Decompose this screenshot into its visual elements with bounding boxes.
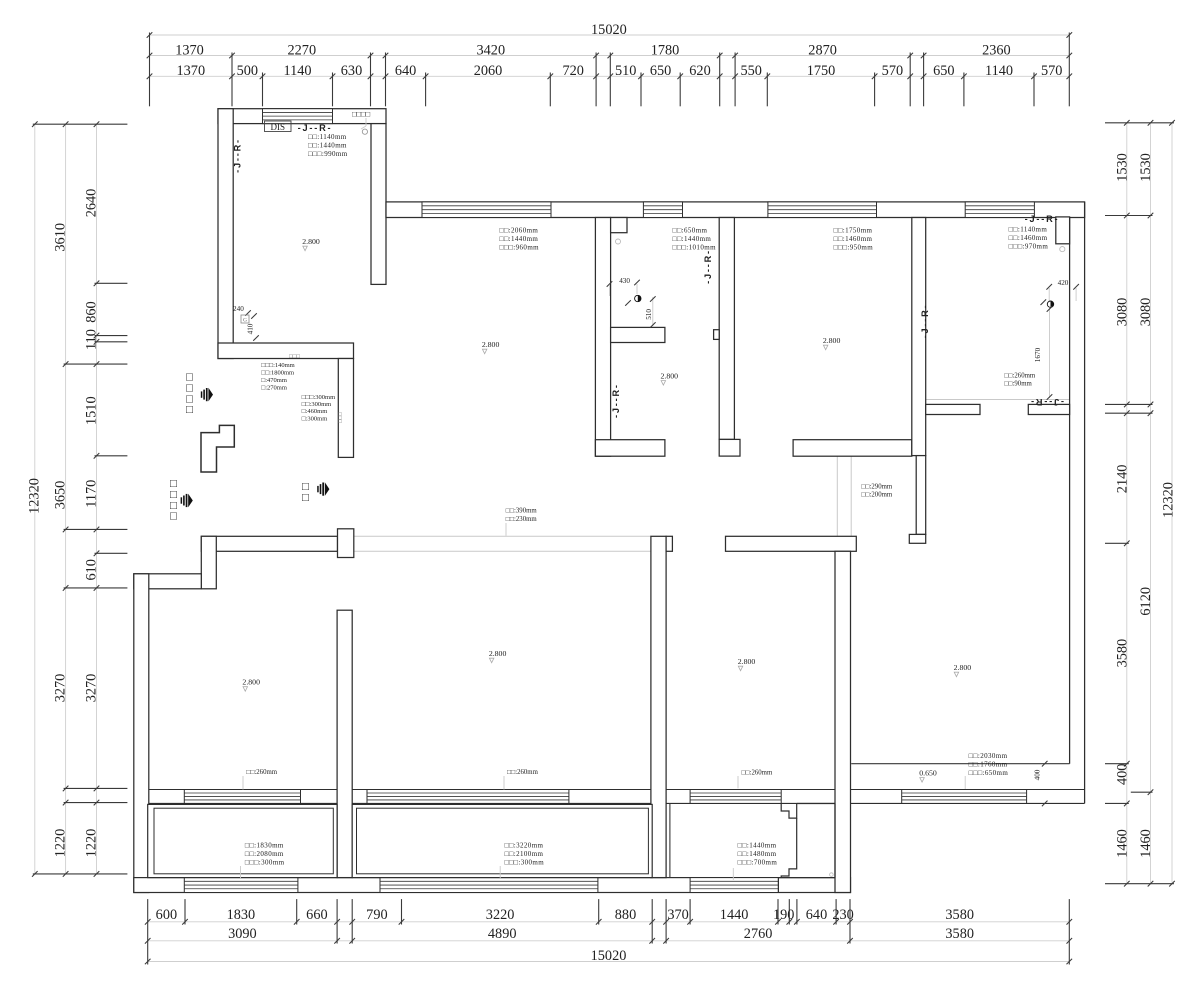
- svg-text:510: 510: [615, 63, 636, 79]
- svg-text:□□:1760mm: □□:1760mm: [969, 761, 1008, 769]
- svg-text:□□:200mm: □□:200mm: [861, 492, 893, 499]
- svg-text:□□:260mm: □□:260mm: [1004, 373, 1036, 380]
- svg-text:420: 420: [1058, 279, 1069, 287]
- svg-text:□:460mm: □:460mm: [302, 408, 328, 415]
- svg-text:□□□:140mm: □□□:140mm: [261, 362, 294, 369]
- svg-text:□□:1140mm: □□:1140mm: [1009, 226, 1048, 234]
- svg-text:□□:1460mm: □□:1460mm: [1009, 234, 1048, 242]
- svg-text:□□□:650mm: □□□:650mm: [969, 769, 1009, 777]
- svg-text:1830: 1830: [227, 907, 256, 923]
- svg-text:190: 190: [773, 907, 794, 923]
- svg-text:370: 370: [667, 907, 688, 923]
- svg-text:□:300mm: □:300mm: [302, 415, 328, 422]
- svg-text:650: 650: [933, 63, 954, 79]
- svg-text:3420: 3420: [477, 43, 506, 59]
- svg-text:400: 400: [1034, 769, 1042, 780]
- svg-text:790: 790: [366, 907, 387, 923]
- svg-text:2.800: 2.800: [482, 340, 500, 349]
- svg-text:430: 430: [619, 277, 630, 285]
- svg-text:1780: 1780: [651, 43, 680, 59]
- svg-text:1530: 1530: [1114, 153, 1130, 182]
- svg-text:2760: 2760: [744, 926, 773, 942]
- svg-text:3610: 3610: [53, 223, 69, 252]
- svg-text:410: 410: [247, 323, 255, 334]
- svg-text:2.800: 2.800: [489, 649, 507, 658]
- svg-text:12320: 12320: [27, 478, 43, 514]
- svg-text:3580: 3580: [945, 907, 974, 923]
- svg-text:□□:260mm: □□:260mm: [741, 770, 773, 777]
- svg-text:□: □: [186, 404, 193, 416]
- svg-text:□□□: □□□: [289, 354, 300, 360]
- svg-text:□: □: [302, 492, 309, 504]
- svg-text:□□:1140mm: □□:1140mm: [308, 133, 347, 141]
- svg-text:1220: 1220: [53, 829, 69, 858]
- svg-text:660: 660: [306, 907, 327, 923]
- svg-text:400: 400: [1114, 764, 1130, 785]
- svg-text:□□□:700mm: □□□:700mm: [738, 859, 778, 867]
- svg-text:3220: 3220: [486, 907, 515, 923]
- svg-text:620: 620: [689, 63, 710, 79]
- svg-text:-J--R-: -J--R-: [611, 383, 621, 418]
- svg-text:□□□:300mm: □□□:300mm: [302, 394, 335, 401]
- svg-text:□□□:300mm: □□□:300mm: [245, 859, 285, 867]
- svg-text:1530: 1530: [1138, 153, 1154, 182]
- svg-text:1220: 1220: [84, 829, 100, 858]
- svg-text:500: 500: [237, 63, 258, 79]
- svg-text:□:470mm: □:470mm: [261, 377, 287, 384]
- svg-text:□:270mm: □:270mm: [261, 385, 287, 392]
- svg-text:□□□: □□□: [338, 412, 344, 423]
- svg-text:□□:1440mm: □□:1440mm: [308, 142, 347, 150]
- svg-text:2270: 2270: [288, 43, 317, 59]
- svg-text:110: 110: [84, 329, 100, 350]
- svg-text:860: 860: [84, 301, 100, 322]
- svg-text:2.800: 2.800: [242, 678, 260, 687]
- svg-text:3080: 3080: [1138, 298, 1154, 327]
- svg-text:3270: 3270: [84, 674, 100, 703]
- svg-text:1510: 1510: [84, 396, 100, 425]
- svg-text:-J--R-: -J--R-: [703, 249, 713, 284]
- svg-text:2640: 2640: [84, 189, 100, 218]
- svg-text:650: 650: [650, 63, 671, 79]
- svg-text:550: 550: [740, 63, 761, 79]
- svg-text:4890: 4890: [488, 926, 517, 942]
- svg-text:1670: 1670: [1034, 347, 1042, 362]
- svg-text:□□:1440mm: □□:1440mm: [738, 842, 777, 850]
- svg-text:610: 610: [84, 559, 100, 580]
- svg-text:570: 570: [1041, 63, 1062, 79]
- svg-text:0.650: 0.650: [919, 768, 937, 777]
- svg-text:3580: 3580: [1114, 639, 1130, 668]
- svg-text:□□□:960mm: □□□:960mm: [499, 244, 539, 252]
- svg-text:2060: 2060: [474, 63, 503, 79]
- svg-text:□□:390mm: □□:390mm: [506, 508, 538, 515]
- svg-text:□□:3220mm: □□:3220mm: [505, 842, 544, 850]
- svg-text:2.800: 2.800: [661, 371, 679, 380]
- svg-text:□□:1830mm: □□:1830mm: [245, 842, 284, 850]
- svg-text:-J--R-: -J--R-: [1025, 214, 1060, 224]
- svg-text:□□:2060mm: □□:2060mm: [499, 227, 538, 235]
- svg-text:12320: 12320: [1161, 482, 1177, 518]
- svg-text:□: □: [170, 511, 177, 523]
- svg-text:1170: 1170: [84, 480, 100, 508]
- svg-text:□□□:1010mm: □□□:1010mm: [672, 244, 716, 252]
- svg-text:□□:2030mm: □□:2030mm: [969, 752, 1008, 760]
- svg-text:510: 510: [645, 309, 653, 320]
- svg-text:□□□:300mm: □□□:300mm: [505, 859, 545, 867]
- svg-text:□□:300mm: □□:300mm: [302, 401, 332, 408]
- svg-text:3580: 3580: [945, 926, 974, 942]
- svg-text:3090: 3090: [228, 926, 257, 942]
- svg-text:□□:230mm: □□:230mm: [506, 516, 538, 523]
- svg-text:1440: 1440: [720, 907, 749, 923]
- svg-text:□□:290mm: □□:290mm: [861, 484, 893, 491]
- svg-text:-J--R-: -J--R-: [920, 304, 930, 339]
- svg-text:630: 630: [341, 63, 362, 79]
- svg-text:15020: 15020: [591, 22, 627, 38]
- svg-text:□□:1480mm: □□:1480mm: [738, 850, 777, 858]
- svg-text:□□□□: □□□□: [352, 110, 371, 119]
- svg-text:720: 720: [562, 63, 583, 79]
- svg-text:640: 640: [395, 63, 416, 79]
- svg-text:2140: 2140: [1114, 465, 1130, 494]
- svg-text:2.800: 2.800: [738, 657, 756, 666]
- svg-text:□□:260mm: □□:260mm: [507, 769, 539, 776]
- svg-text:230: 230: [832, 907, 853, 923]
- svg-text:-J--R-: -J--R-: [1029, 397, 1064, 407]
- svg-text:1460: 1460: [1138, 829, 1154, 858]
- svg-text:□□□:950mm: □□□:950mm: [834, 244, 874, 252]
- svg-text:□□□:990mm: □□□:990mm: [308, 150, 348, 158]
- svg-text:6120: 6120: [1138, 587, 1154, 616]
- svg-text:1140: 1140: [283, 63, 311, 79]
- svg-text:□□:1800mm: □□:1800mm: [261, 370, 294, 377]
- svg-text:□□:2080mm: □□:2080mm: [245, 850, 284, 858]
- svg-text:2360: 2360: [982, 43, 1011, 59]
- svg-text:880: 880: [615, 907, 636, 923]
- svg-text:2.800: 2.800: [954, 663, 972, 672]
- svg-text:15020: 15020: [591, 948, 627, 964]
- svg-text:1140: 1140: [985, 63, 1013, 79]
- svg-text:-J--R-: -J--R-: [298, 123, 333, 133]
- svg-text:640: 640: [806, 907, 827, 923]
- svg-text:DIS: DIS: [271, 122, 286, 132]
- svg-text:3270: 3270: [53, 674, 69, 703]
- svg-text:570: 570: [882, 63, 903, 79]
- svg-text:□□:2100mm: □□:2100mm: [505, 850, 544, 858]
- svg-text:□□:90mm: □□:90mm: [1004, 381, 1032, 388]
- svg-text:G: G: [243, 318, 247, 324]
- svg-text:3650: 3650: [53, 481, 69, 510]
- svg-text:□□:1440mm: □□:1440mm: [499, 235, 538, 243]
- svg-text:□□:1460mm: □□:1460mm: [834, 235, 873, 243]
- svg-text:-J--R-: -J--R-: [233, 138, 243, 173]
- svg-text:240: 240: [233, 305, 244, 313]
- svg-text:2.800: 2.800: [823, 336, 841, 345]
- svg-text:□□:1440mm: □□:1440mm: [672, 235, 711, 243]
- svg-text:□□□:970mm: □□□:970mm: [1009, 243, 1049, 251]
- svg-text:□□:650mm: □□:650mm: [672, 227, 707, 235]
- svg-text:2.800: 2.800: [302, 237, 320, 246]
- svg-text:1750: 1750: [807, 63, 836, 79]
- svg-text:□□:1750mm: □□:1750mm: [834, 227, 873, 235]
- svg-text:600: 600: [156, 907, 177, 923]
- svg-text:□□:260mm: □□:260mm: [246, 769, 278, 776]
- svg-text:2870: 2870: [808, 43, 837, 59]
- svg-text:1370: 1370: [175, 43, 204, 59]
- svg-text:1370: 1370: [177, 63, 206, 79]
- svg-text:3080: 3080: [1114, 298, 1130, 327]
- svg-text:1460: 1460: [1114, 829, 1130, 858]
